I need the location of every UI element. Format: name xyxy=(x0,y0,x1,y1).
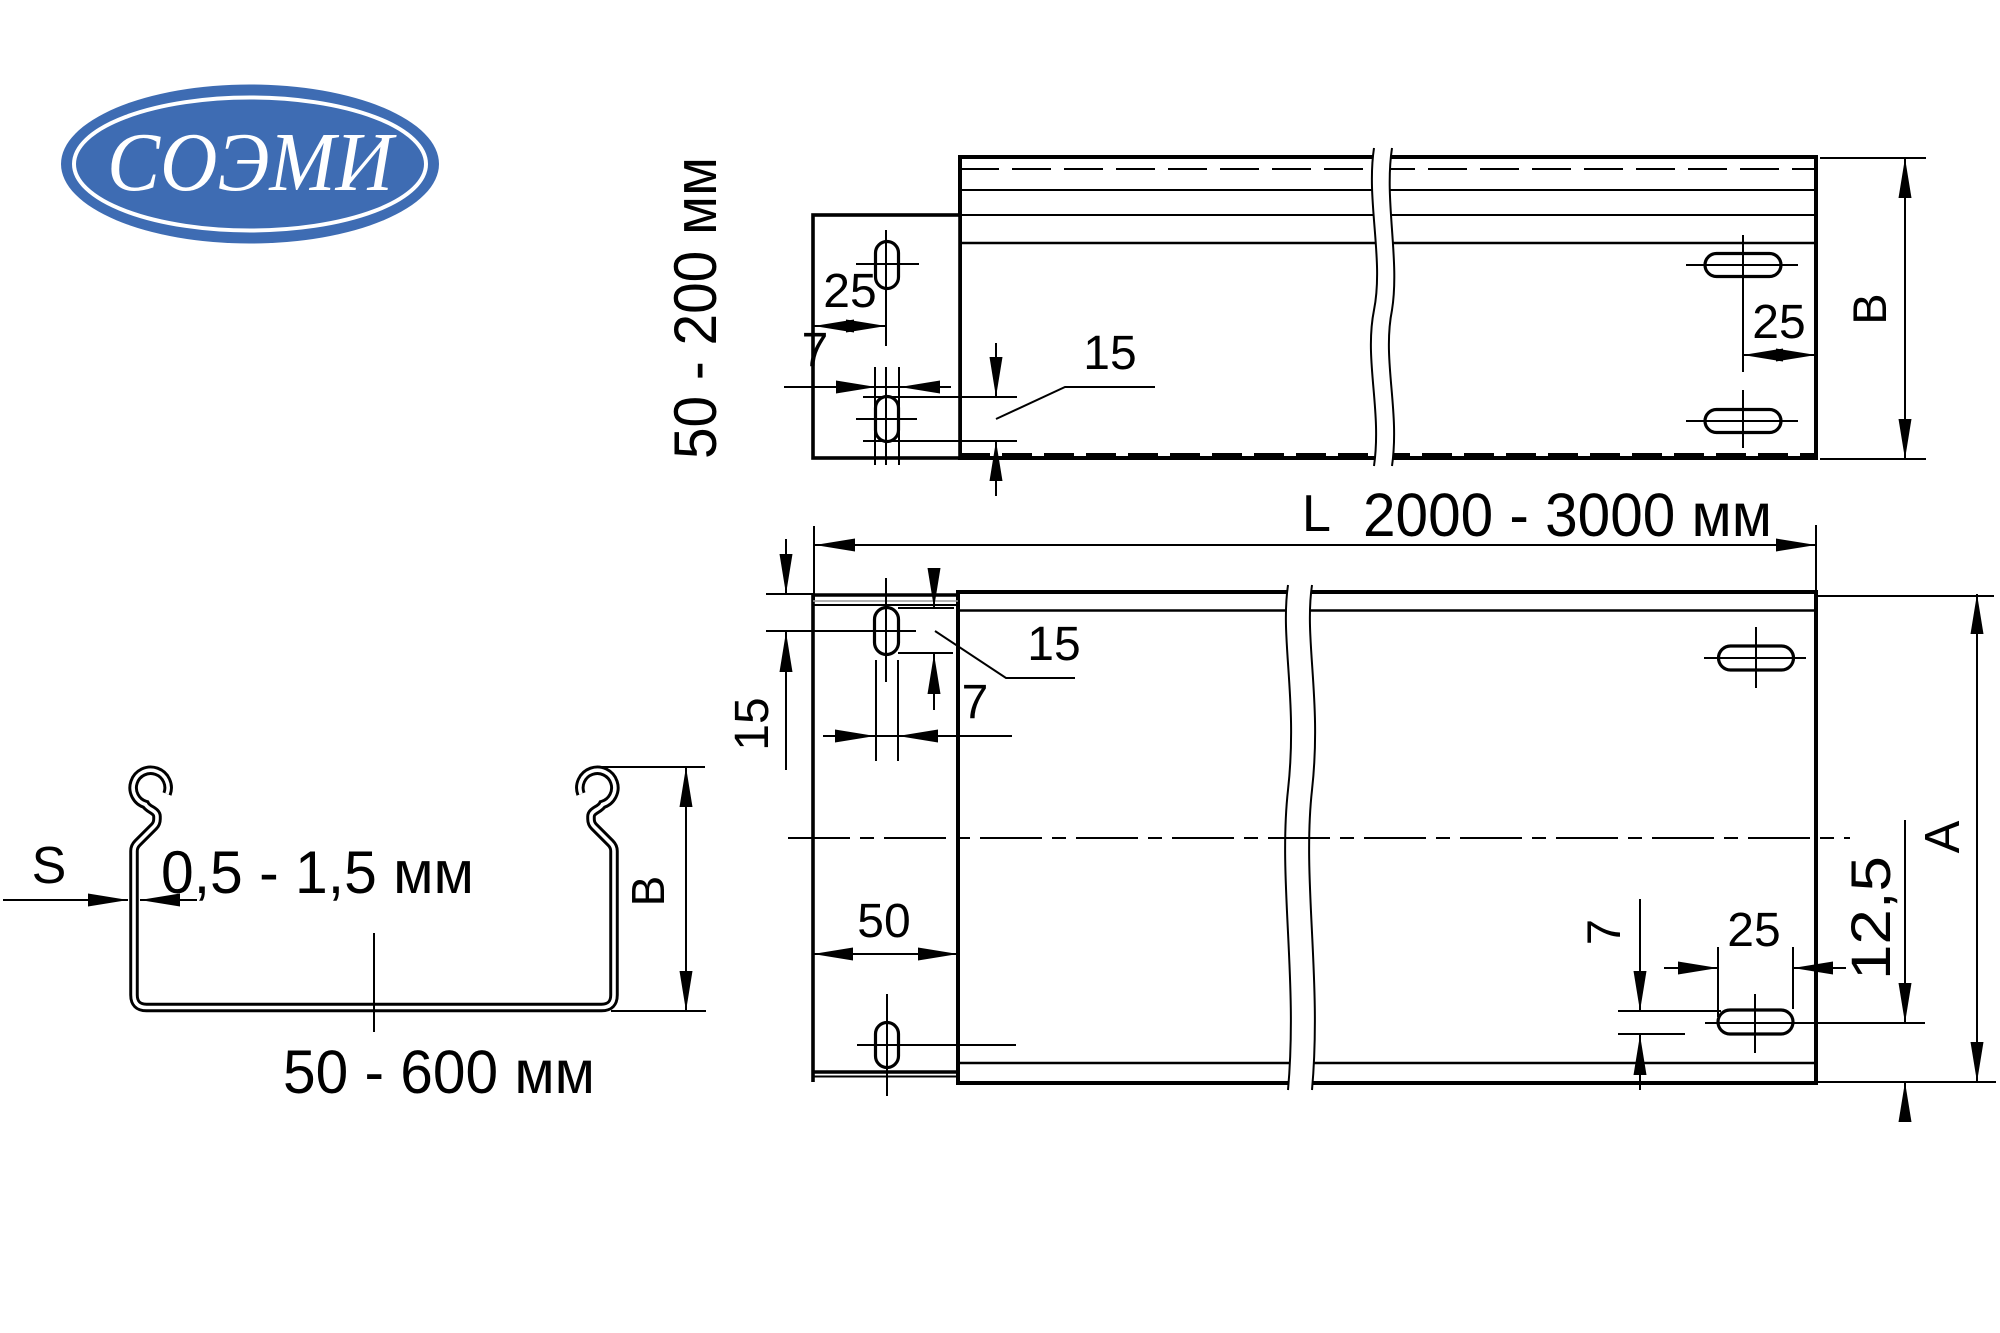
svg-text:50 - 600 мм: 50 - 600 мм xyxy=(283,1038,595,1106)
svg-text:L: L xyxy=(1302,485,1331,543)
svg-text:В: В xyxy=(622,876,674,907)
svg-text:0,5 - 1,5 мм: 0,5 - 1,5 мм xyxy=(161,839,474,906)
svg-text:7: 7 xyxy=(802,324,829,377)
svg-text:15: 15 xyxy=(1027,618,1080,671)
svg-text:50: 50 xyxy=(857,895,910,948)
svg-text:25: 25 xyxy=(1752,296,1805,349)
svg-text:25: 25 xyxy=(823,265,876,318)
svg-text:2000 - 3000 мм: 2000 - 3000 мм xyxy=(1363,481,1772,549)
svg-text:7: 7 xyxy=(1577,919,1630,945)
svg-text:A: A xyxy=(1916,820,1970,853)
svg-text:СОЭМИ: СОЭМИ xyxy=(107,116,397,209)
svg-text:В: В xyxy=(1843,293,1896,324)
svg-text:15: 15 xyxy=(726,697,779,750)
svg-text:7: 7 xyxy=(962,676,989,729)
svg-text:12,5: 12,5 xyxy=(1839,856,1902,980)
svg-text:S: S xyxy=(32,837,67,895)
svg-text:15: 15 xyxy=(1083,327,1136,380)
svg-text:25: 25 xyxy=(1727,904,1780,957)
svg-text:50 - 200 мм: 50 - 200 мм xyxy=(662,157,729,459)
